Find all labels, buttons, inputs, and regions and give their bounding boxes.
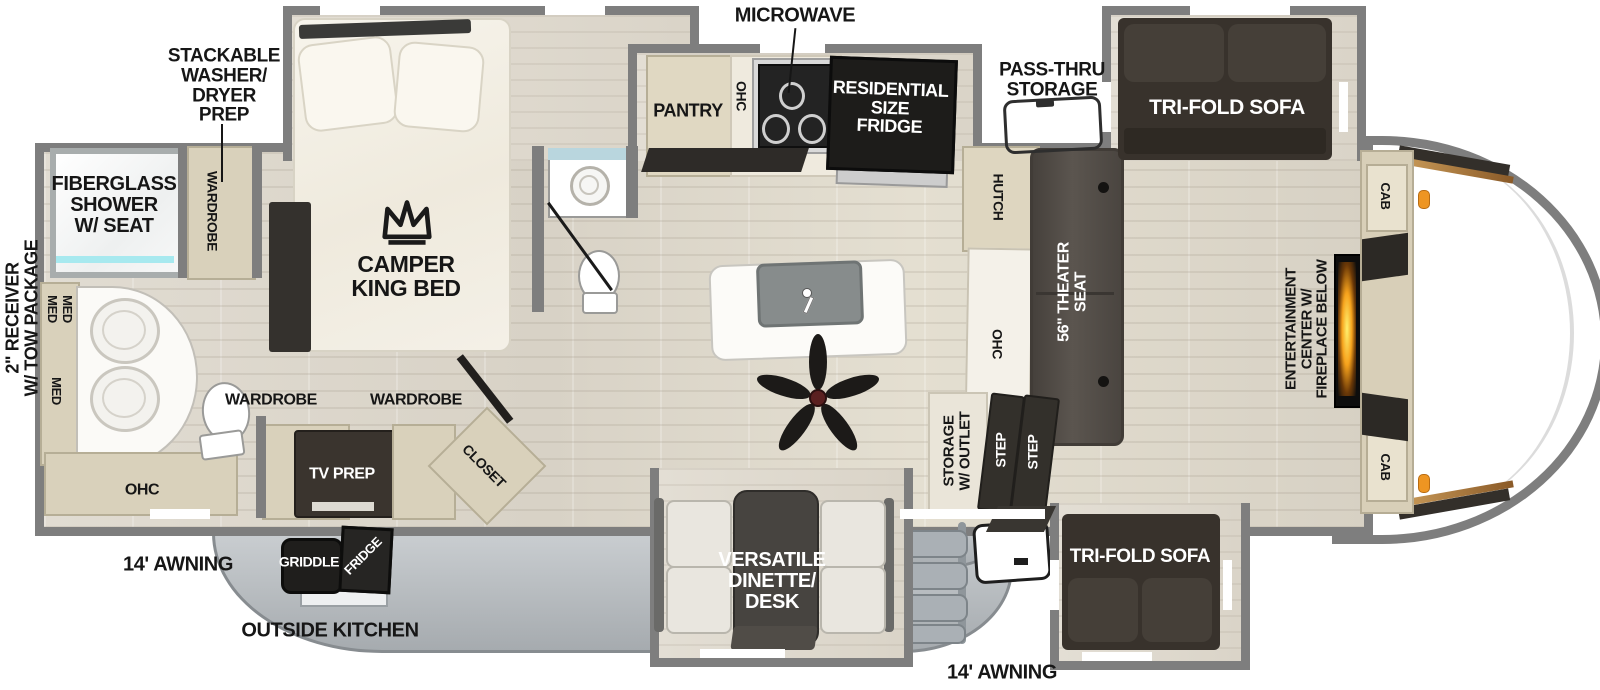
label-trifold-sofa-top: TRI-FOLD SOFA [1149, 97, 1305, 119]
wall [256, 416, 266, 518]
label-hutch: HUTCH [991, 174, 1006, 221]
window-notch [150, 509, 210, 519]
label-theater-seat: 56" THEATER SEAT [1056, 242, 1089, 342]
label-camper-king-bed: CAMPER KING BED [351, 253, 460, 301]
label-storage-outlet: STORAGE W/ OUTLET [941, 412, 972, 491]
wall [532, 146, 544, 312]
sofa-cushion [1124, 24, 1224, 82]
window-notch [1082, 652, 1152, 661]
sink-icon [102, 378, 146, 418]
label-trifold-sofa-bottom: TRI-FOLD SOFA [1070, 547, 1210, 567]
dinette-bench [820, 566, 886, 634]
leader-line-washer [221, 124, 223, 182]
sofa-cushion [1068, 578, 1138, 642]
bedroom-dresser [269, 202, 311, 352]
shower-glass [56, 256, 174, 263]
rv-floorplan: MICROWAVE PASS-THRU STORAGE STACKABLE WA… [0, 0, 1600, 690]
sofa-cushion [1142, 578, 1212, 642]
toilet-icon [582, 292, 618, 314]
fireplace-flame [1338, 262, 1356, 396]
door-opening [900, 509, 1045, 519]
label-tv-prep: TV PREP [309, 467, 375, 484]
sink-icon [579, 175, 599, 195]
burner-icon [779, 82, 805, 110]
label-awning-right: 14' AWNING [947, 663, 1057, 684]
window-notch [1190, 6, 1290, 15]
label-microwave: MICROWAVE [735, 6, 855, 27]
window-notch [700, 649, 785, 658]
label-outside-kitchen: OUTSIDE KITCHEN [241, 621, 418, 642]
sofa-seat [1124, 128, 1326, 154]
oven-front [641, 148, 809, 172]
pillow-icon [296, 35, 400, 134]
dinette-bench-rail [654, 498, 664, 632]
label-ohc-hutch: OHC [990, 329, 1005, 359]
window-notch [1050, 560, 1059, 610]
cupholder-icon [1098, 182, 1109, 193]
label-med: MED [45, 295, 59, 323]
cupholder-icon [1098, 376, 1109, 387]
label-wardrobe-right: WARDROBE [370, 393, 462, 410]
dinette-bench-bottom [730, 626, 817, 650]
entry-door-handle [1014, 558, 1028, 565]
burner-icon [798, 114, 826, 144]
label-pantry: PANTRY [653, 102, 723, 121]
label-receiver-tow: 2" RECEIVER W/ TOW PACKAGE [3, 240, 40, 397]
half-bath-vanity-backsplash [548, 148, 626, 160]
tv-prep-slot [312, 502, 374, 511]
label-step: STEP [1026, 435, 1041, 470]
label-residential-fridge: RESIDENTIAL SIZE FRIDGE [831, 78, 948, 138]
label-awning-left: 14' AWNING [123, 555, 233, 576]
pass-thru-door-handle [1036, 100, 1054, 108]
label-pass-thru-storage: PASS-THRU STORAGE [999, 60, 1105, 100]
wall [252, 146, 262, 278]
window-notch [545, 6, 605, 15]
window-notch [320, 6, 380, 15]
crown-icon [377, 196, 437, 248]
dinette-bench [820, 500, 886, 568]
label-wardrobe-bed: WARDROBE [205, 171, 220, 251]
label-med: MED [49, 377, 63, 405]
label-cab-bottom: CAB [1378, 454, 1392, 481]
label-fiberglass-shower: FIBERGLASS SHOWER W/ SEAT [52, 174, 177, 236]
wall [626, 146, 638, 218]
burner-icon [762, 114, 790, 144]
label-versatile-dinette: VERSATILE DINETTE/ DESK [718, 550, 825, 612]
label-washer-dryer-prep: STACKABLE WASHER/ DRYER PREP [168, 47, 280, 126]
window-notch [1339, 82, 1348, 132]
label-griddle: GRIDDLE [279, 555, 339, 570]
sofa-cushion [1228, 24, 1326, 82]
cap-handle-top-icon [1418, 190, 1430, 209]
label-entertainment-center: ENTERTAINMENT CENTER W/ FIREPLACE BELOW [1284, 260, 1331, 399]
sink-icon [102, 310, 146, 350]
label-cab-top: CAB [1378, 183, 1392, 210]
label-ohc-kitchen: OHC [734, 81, 749, 111]
label-wardrobe-left: WARDROBE [225, 393, 317, 410]
label-ohc-bath: OHC [125, 483, 159, 500]
label-med: MED [60, 295, 74, 323]
pillow-icon [392, 40, 485, 133]
label-step: STEP [994, 433, 1009, 468]
cap-handle-bottom-icon [1418, 474, 1430, 493]
ceiling-fan-icon [753, 333, 883, 463]
speaker-panel [1362, 233, 1408, 281]
speaker-panel [1362, 393, 1408, 441]
window-notch [1223, 560, 1232, 610]
wall [178, 146, 187, 278]
